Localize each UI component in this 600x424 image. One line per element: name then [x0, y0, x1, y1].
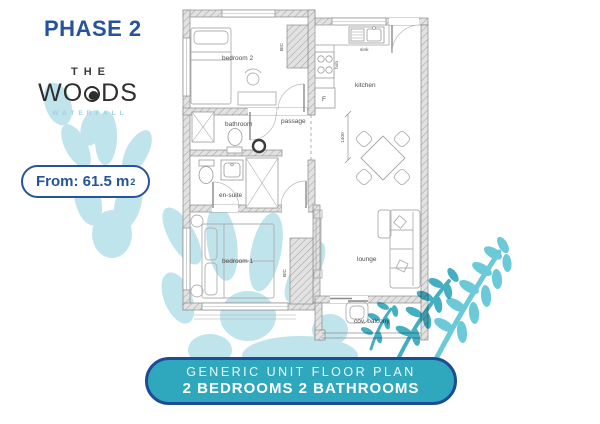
desk-chair-icon [238, 69, 276, 105]
dimension-label: 1400 [340, 132, 346, 143]
bathroom-fixtures [192, 112, 265, 153]
logo-woods-right: DS [101, 79, 138, 108]
phase-label: PHASE 2 [44, 16, 142, 42]
ensuite-fixtures [199, 158, 278, 208]
sink-icon [349, 27, 384, 44]
logo-woods: WO DS [30, 79, 146, 108]
unit-type-banner: GENERIC UNIT FLOOR PLAN 2 BEDROOMS 2 BAT… [145, 357, 457, 405]
bic-label-bedroom1: BIC [282, 268, 288, 277]
room-label-passage: passage [281, 118, 306, 125]
logo-subtitle: WATERFALL [30, 110, 146, 117]
room-label-bedroom2: bedroom 2 [222, 55, 253, 62]
fixture-label-fridge: F [322, 96, 326, 103]
decor-fern-large [432, 235, 512, 357]
price-area-badge: From: 61.5 m2 [21, 165, 150, 198]
bed2-icon [191, 28, 231, 104]
flyer: bedroom 2 kitchen bathroom passage en-su… [0, 0, 600, 424]
badge-text: From: 61.5 m [36, 173, 129, 190]
banner-title: GENERIC UNIT FLOOR PLAN [186, 365, 416, 379]
badge-superscript: 2 [130, 177, 135, 187]
sofa-icon [378, 210, 420, 288]
room-label-ensuite: en-suite [219, 192, 243, 199]
hob-icon [315, 52, 334, 78]
logo-woods-left: WO [38, 79, 83, 108]
logo-o-leaf-icon [84, 86, 100, 102]
room-label-kitchen: kitchen [355, 82, 376, 89]
logo: THE WO DS WATERFALL [30, 66, 146, 117]
fixture-label-sink: sink [360, 47, 369, 53]
room-label-lounge: lounge [357, 256, 377, 263]
banner-subtitle: 2 BEDROOMS 2 BATHROOMS [183, 380, 420, 397]
room-label-bathroom: bathroom [225, 121, 252, 128]
bic-label-bedroom2: BIC [279, 42, 285, 51]
logo-the: THE [30, 66, 146, 78]
fixture-label-hob: hob [334, 61, 340, 69]
dining-table-icon [355, 130, 411, 186]
room-label-bedroom1: bedroom 1 [222, 258, 253, 265]
